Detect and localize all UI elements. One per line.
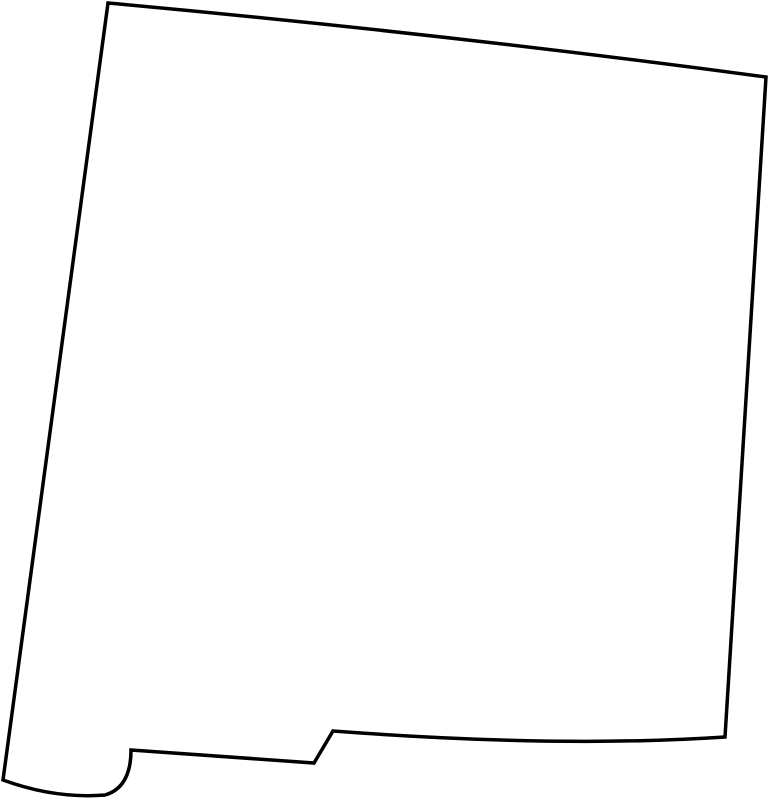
new-mexico-map (0, 0, 769, 800)
new-mexico-state-outline (3, 3, 766, 796)
map-canvas (0, 0, 769, 800)
